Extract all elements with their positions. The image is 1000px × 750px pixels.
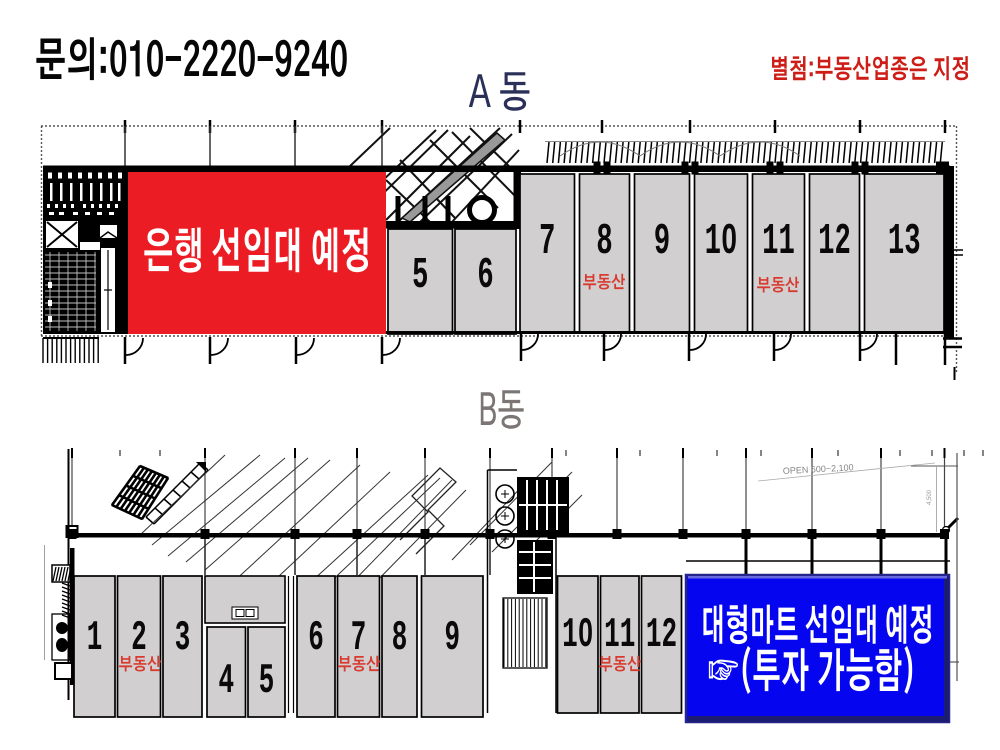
svg-text:OPEN 600~2,100: OPEN 600~2,100 bbox=[783, 462, 854, 476]
svg-text:4,500: 4,500 bbox=[927, 489, 933, 505]
